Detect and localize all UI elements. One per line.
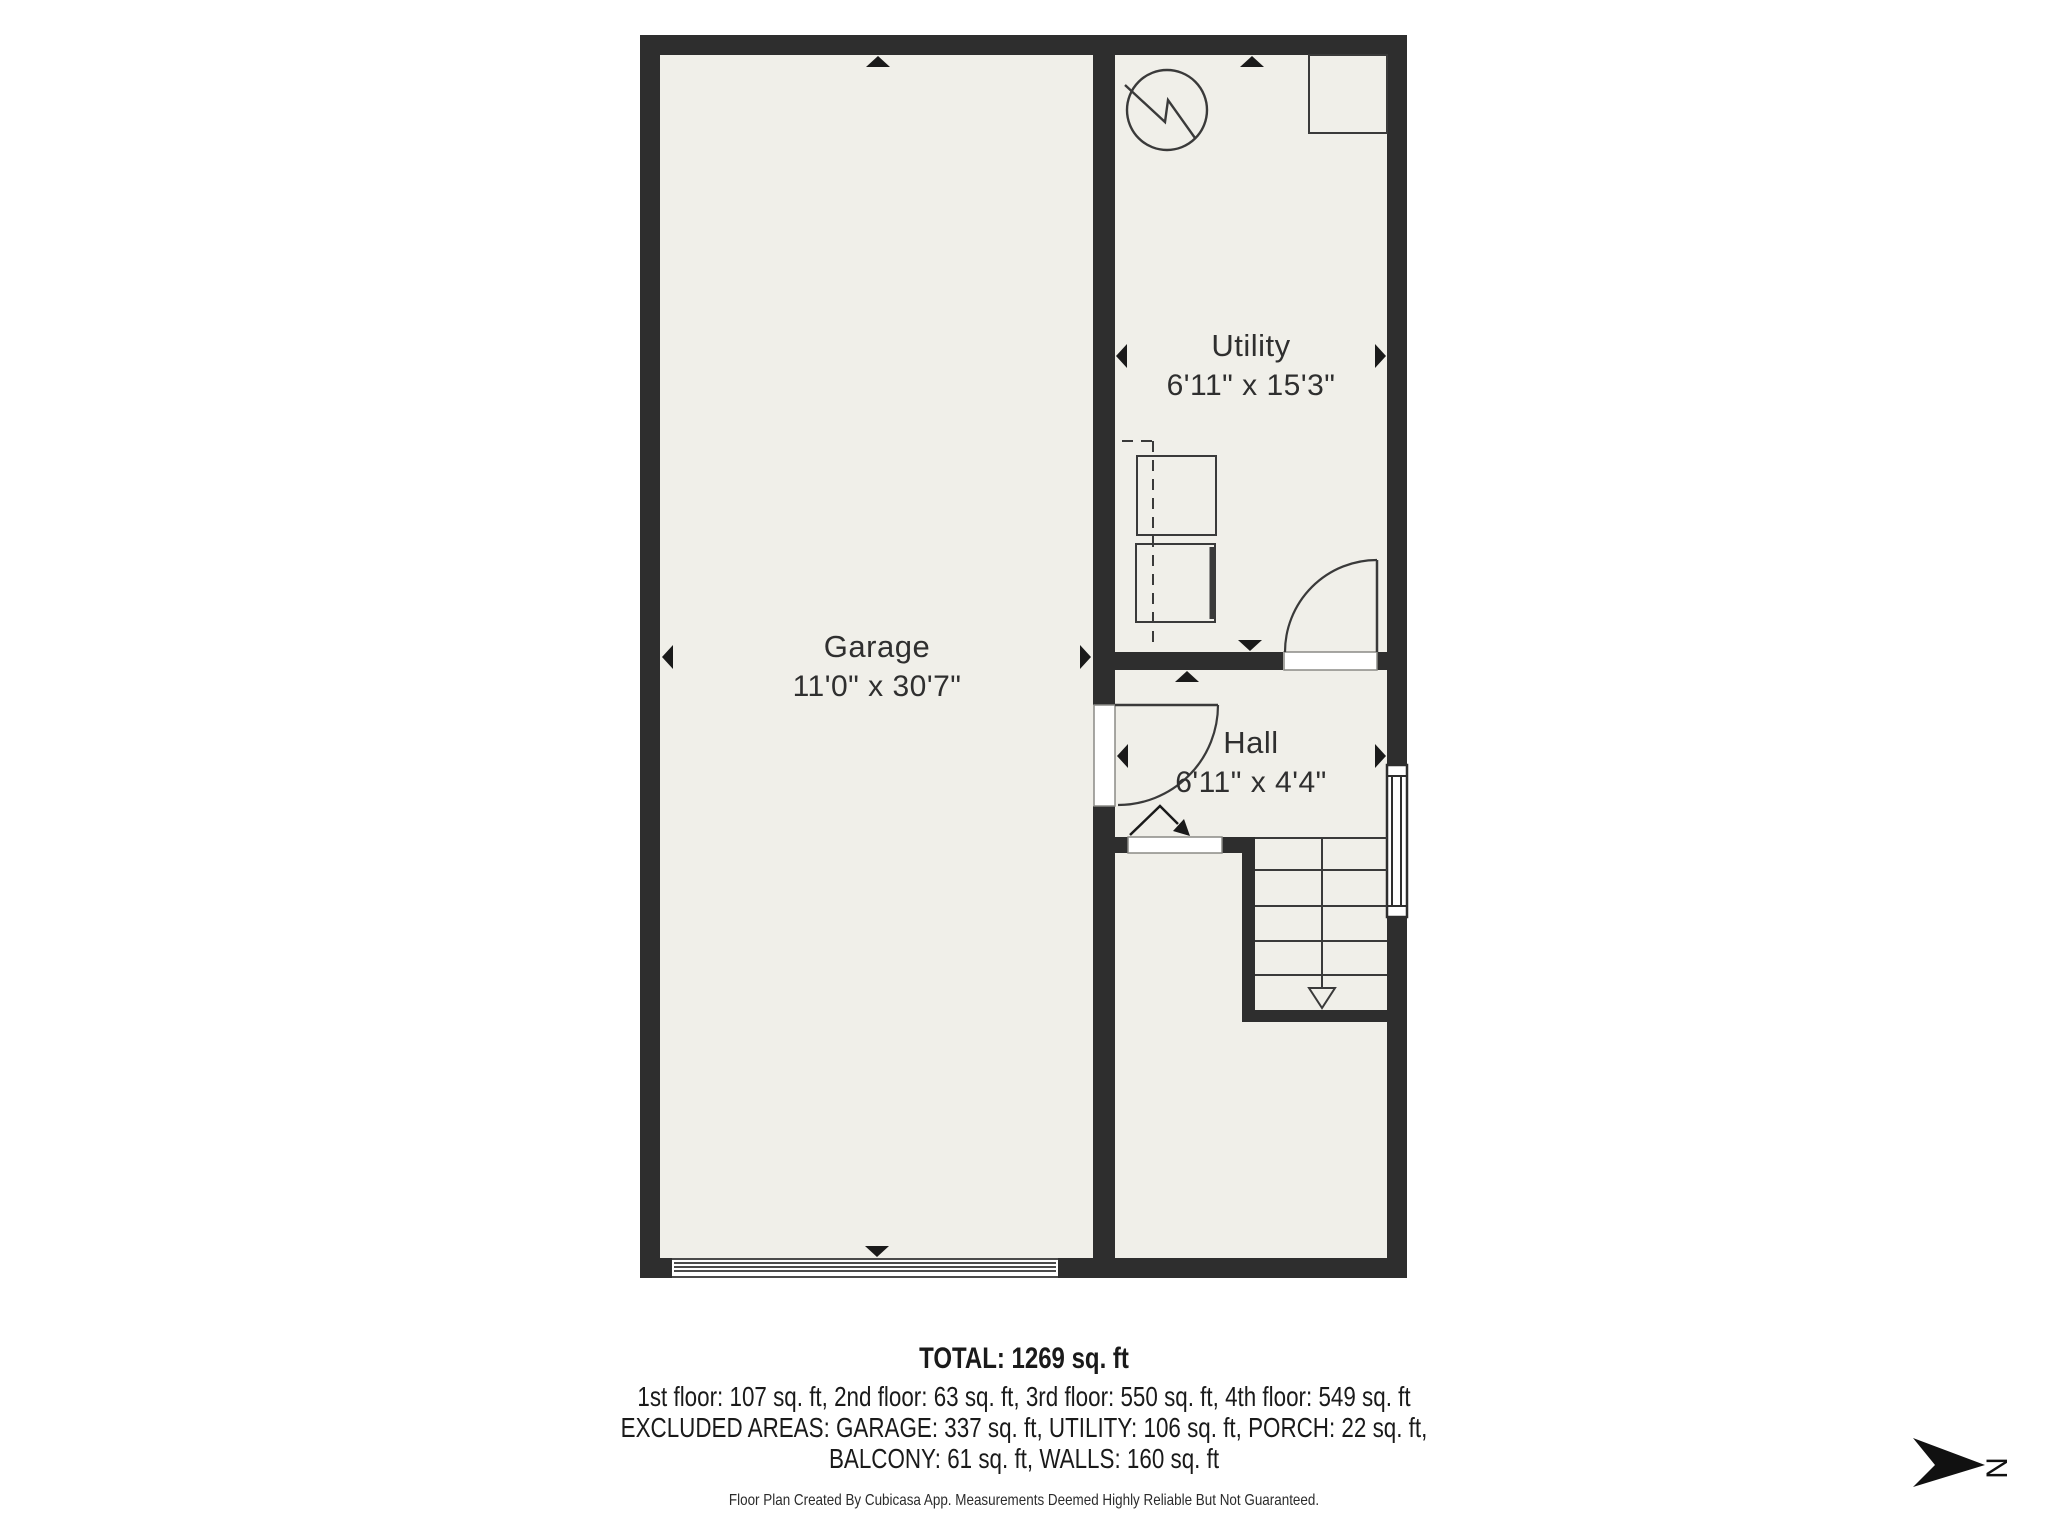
wall-segment	[1242, 837, 1255, 1022]
wall-segment	[1387, 35, 1407, 765]
floor-areas: 1st floor: 107 sq. ft, 2nd floor: 63 sq.…	[205, 1381, 1843, 1412]
disclaimer: Floor Plan Created By Cubicasa App. Meas…	[164, 1492, 1884, 1510]
wall-segment	[1242, 1010, 1407, 1022]
room-label-hall: Hall 6'11" x 4'4"	[1175, 723, 1327, 803]
room-name: Garage	[793, 627, 962, 667]
window	[1387, 765, 1407, 917]
excluded-areas-line1: EXCLUDED AREAS: GARAGE: 337 sq. ft, UTIL…	[205, 1412, 1843, 1443]
room-label-utility: Utility 6'11" x 15'3"	[1167, 326, 1336, 406]
room-dimensions: 6'11" x 4'4"	[1175, 763, 1327, 803]
door-threshold	[1284, 652, 1377, 670]
wall-segment	[640, 35, 660, 1278]
wall-segment	[1093, 55, 1115, 705]
door-threshold	[1094, 705, 1115, 806]
room-name: Utility	[1167, 326, 1336, 366]
wall-segment	[1377, 652, 1387, 670]
room-dimensions: 6'11" x 15'3"	[1167, 366, 1336, 406]
wall-segment	[1115, 837, 1128, 853]
excluded-areas-line2: BALCONY: 61 sq. ft, WALLS: 160 sq. ft	[205, 1443, 1843, 1474]
doorway-threshold	[1128, 837, 1222, 853]
wall-segment	[640, 1258, 672, 1278]
area-summary: TOTAL: 1269 sq. ft 1st floor: 107 sq. ft…	[0, 1342, 2048, 1510]
room-label-garage: Garage 11'0" x 30'7"	[793, 627, 962, 707]
wall-segment	[1058, 1258, 1407, 1278]
wall-segment	[640, 35, 1407, 55]
wall-segment	[1093, 806, 1115, 1258]
room-dimensions: 11'0" x 30'7"	[793, 667, 962, 707]
wall-segment	[1387, 917, 1407, 1278]
garage-door	[672, 1258, 1058, 1278]
room-name: Hall	[1175, 723, 1327, 763]
total-area: TOTAL: 1269 sq. ft	[205, 1342, 1843, 1376]
floor-plan: N	[0, 0, 2048, 1536]
wall-segment	[1115, 652, 1283, 670]
